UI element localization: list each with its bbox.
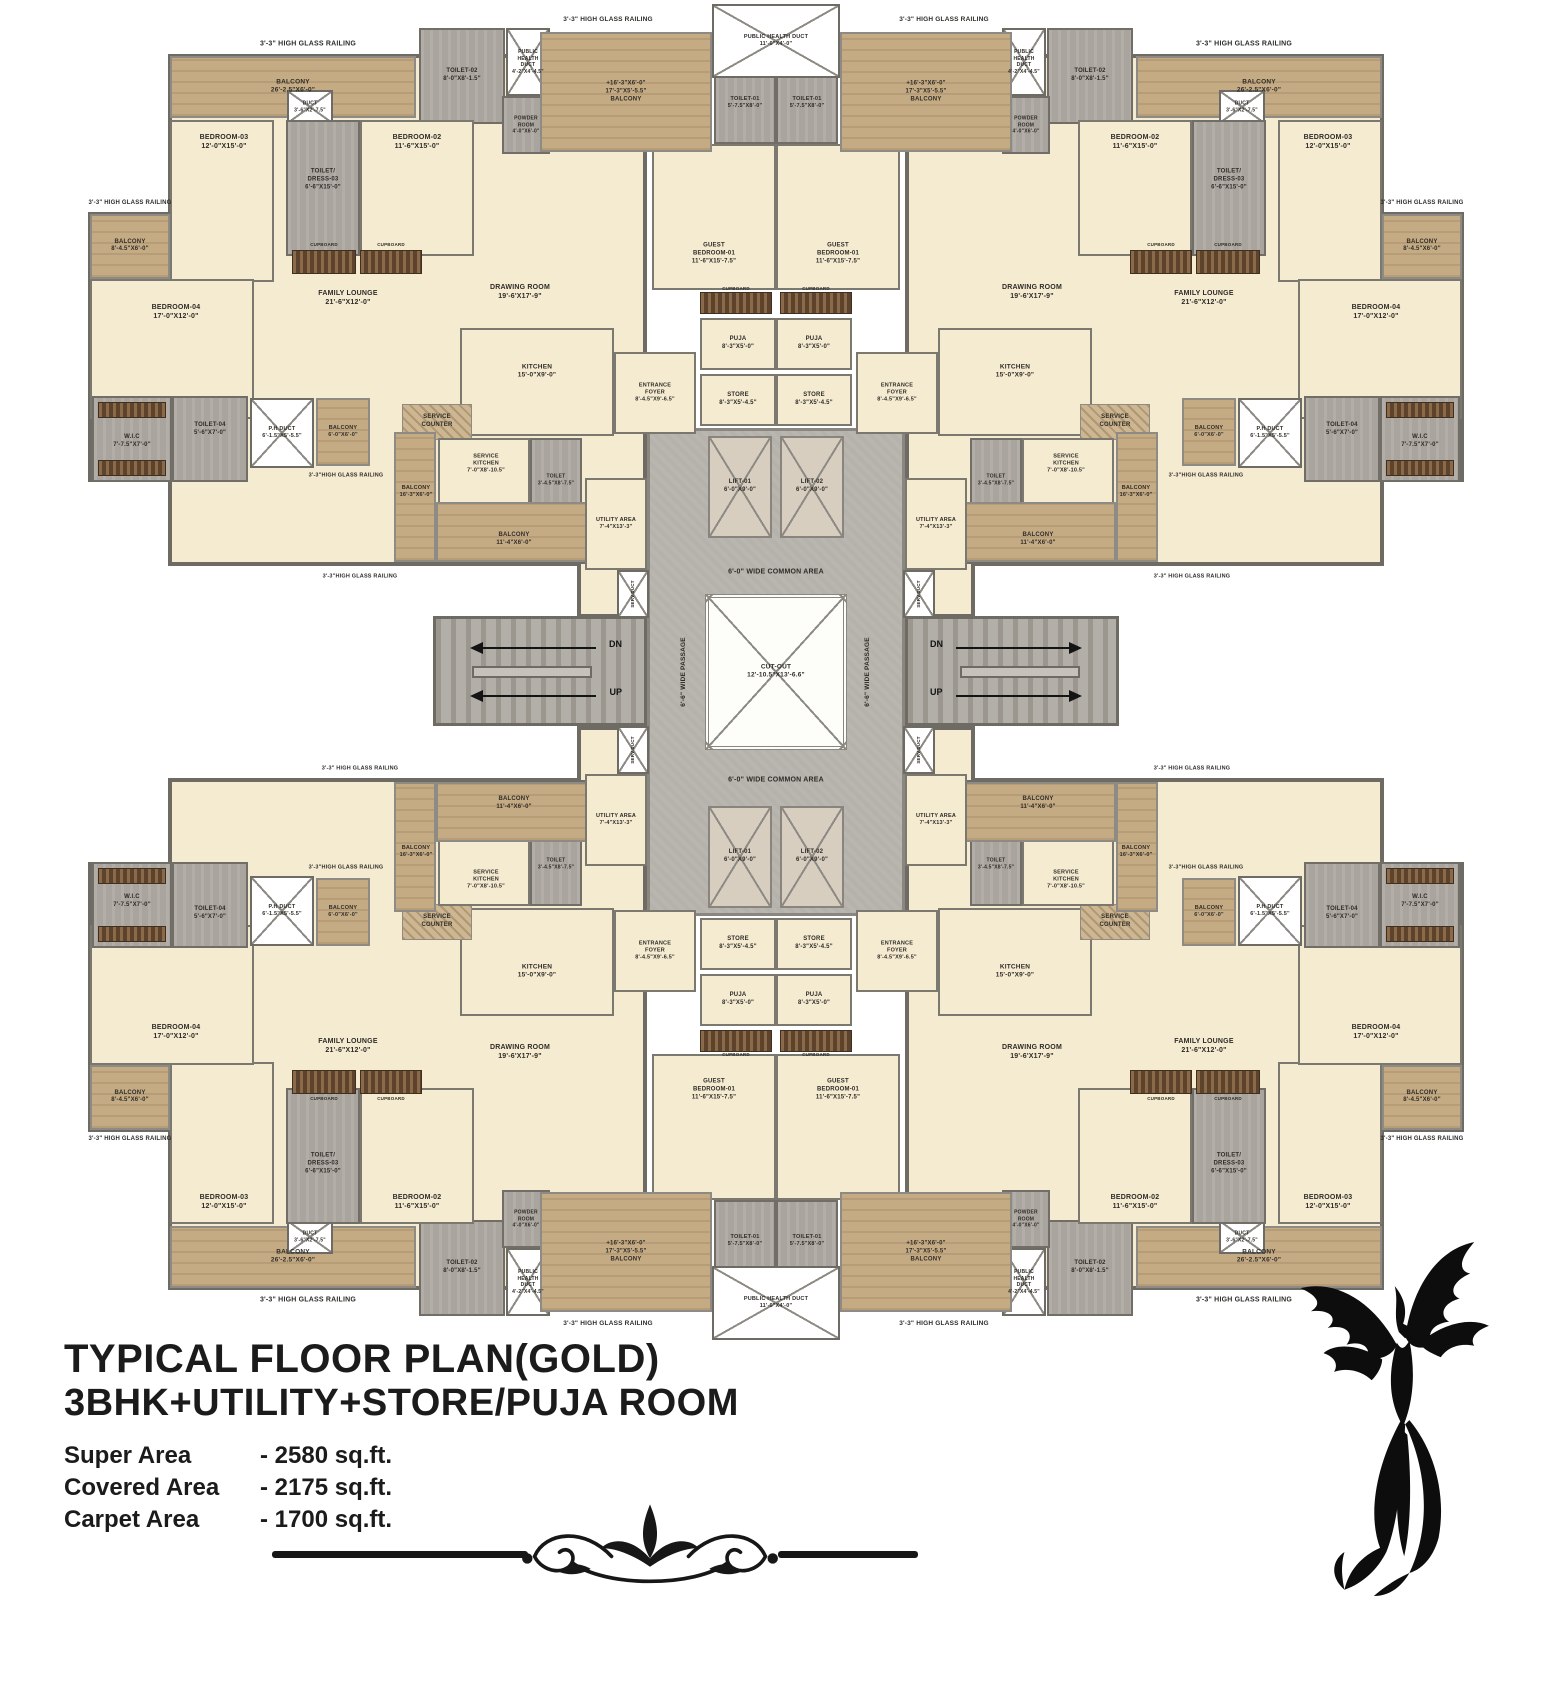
kitchen-tl-label: KITCHEN 15'-0"X9'-0" bbox=[518, 364, 556, 381]
railing-center-tl-label: 3'-3" HIGH GLASS RAILING bbox=[563, 16, 653, 24]
passage-right-label: 6'-6" WIDE PASSAGE bbox=[864, 637, 872, 707]
bedroom-02-tr-label: BEDROOM-02 11'-6"X15'-0" bbox=[1111, 133, 1160, 151]
wic-cupboard-bottom-tr bbox=[1386, 460, 1454, 476]
stair-rail-left bbox=[472, 666, 592, 678]
wic-cupboard-bottom-bl bbox=[98, 868, 166, 884]
railing-mid-tl-label: 3'-3"HIGH GLASS RAILING bbox=[309, 472, 384, 479]
toilet-04-bl bbox=[172, 862, 248, 948]
balcony-6x6-br-label: BALCONY 6'-0"X6'-0" bbox=[1194, 905, 1224, 919]
cupboard-strip-a-br bbox=[1196, 1070, 1260, 1094]
bedroom-03-bl-label: BEDROOM-03 12'-0"X15'-0" bbox=[200, 1193, 249, 1211]
cupboard-b-label-br-label: CUPBOARD bbox=[1147, 1096, 1175, 1102]
service-counter-label-bl-label: SERVICE COUNTER bbox=[421, 914, 452, 930]
service-kitchen-br-label: SERVICE KITCHEN 7'-0"X8'-10.5" bbox=[1047, 869, 1085, 890]
balcony-main-tl-label: BALCONY 26'-2.5"X6'-0" bbox=[271, 79, 315, 96]
railing-left-tl-label: 3'-3" HIGH GLASS RAILING bbox=[88, 200, 171, 208]
family-lounge-tl-label: FAMILY LOUNGE 21'-6"X12'-0" bbox=[318, 289, 377, 307]
powder-room-tl-label: POWDER ROOM 4'-0"X6'-0" bbox=[512, 115, 539, 135]
puja-tr-label: PUJA 8'-3"X5'-0" bbox=[798, 336, 830, 352]
toilet-01-bl-label: TOILET-01 5'-7.5"X8'-0" bbox=[728, 1234, 763, 1248]
balcony-11-br-label: BALCONY 11'-4"X6'-0" bbox=[1020, 796, 1055, 812]
railing-left-bl-label: 3'-3" HIGH GLASS RAILING bbox=[88, 1136, 171, 1144]
cupboard-b-label-tr-label: CUPBOARD bbox=[1147, 242, 1175, 248]
balcony-11-bl bbox=[436, 782, 592, 842]
toilet-02-br-label: TOILET-02 8'-0"X8'-1.5" bbox=[1071, 1260, 1109, 1276]
guest-cupboard-br bbox=[780, 1030, 852, 1052]
toilet-04-tr bbox=[1304, 396, 1380, 482]
drawing-room-bl-label: DRAWING ROOM 19'-6'X17'-9" bbox=[490, 1043, 550, 1061]
balcony-11-tr-label: BALCONY 11'-4"X6'-0" bbox=[1020, 532, 1055, 548]
lift-02-top-label: LIFT-02 6'-0"X9'-0" bbox=[796, 479, 828, 495]
balcony-small-left-bl-label: BALCONY 8'-4.5"X6'-0" bbox=[111, 1090, 149, 1106]
drawing-room-tl-label: DRAWING ROOM 19'-6'X17'-9" bbox=[490, 283, 550, 301]
toilet-02-tl-label: TOILET-02 8'-0"X8'-1.5" bbox=[443, 68, 481, 84]
serv-duct-br-label: SERV.DUCT bbox=[916, 736, 922, 763]
cupboard-strip-a-bl bbox=[292, 1070, 356, 1094]
utility-area-bl-label: UTILITY AREA 7'-4"X13'-3" bbox=[596, 813, 636, 827]
stat-label: Carpet Area bbox=[64, 1504, 260, 1536]
guest-cupboard-tr bbox=[780, 292, 852, 314]
common-area-top-label: 6'-0" WIDE COMMON AREA bbox=[728, 567, 824, 576]
balcony-16-tr-label: BALCONY 16'-3"X6'-0" bbox=[1120, 485, 1153, 499]
arrow-dn-left-label: DN bbox=[609, 639, 622, 649]
duct-small-tl-label: DUCT 3'-6"X2'-7.5" bbox=[294, 101, 326, 114]
puja-br-label: PUJA 8'-3"X5'-0" bbox=[798, 992, 830, 1008]
serv-duct-tr-label: SERV.DUCT bbox=[916, 580, 922, 607]
guest-cupboard-label-bl-label: CUPBOARD bbox=[722, 1052, 750, 1058]
kitchen-br bbox=[938, 908, 1092, 1016]
balcony-center-tr-label: +16'-3"X6'-0" 17'-3"X5'-5.5" BALCONY bbox=[905, 80, 946, 103]
public-health-duct-bottom-label: PUBLIC HEALTH DUCT 11'-6"X4'-0" bbox=[744, 1296, 808, 1310]
guest-cupboard-label-br-label: CUPBOARD bbox=[802, 1052, 830, 1058]
kitchen-bl-label: KITCHEN 15'-0"X9'-0" bbox=[518, 964, 556, 981]
stair-rail-right bbox=[960, 666, 1080, 678]
cupboard-strip-a-tl bbox=[292, 250, 356, 274]
balcony-small-left-tl-label: BALCONY 8'-4.5"X6'-0" bbox=[111, 239, 149, 255]
public-health-duct-top-label: PUBLIC HEALTH DUCT 11'-6"X4'-0" bbox=[744, 34, 808, 48]
plan-title: TYPICAL FLOOR PLAN(GOLD) bbox=[64, 1336, 739, 1382]
balcony-11-bl-label: BALCONY 11'-4"X6'-0" bbox=[496, 796, 531, 812]
lift-01-bottom-label: LIFT-01 6'-0"X9'-0" bbox=[724, 849, 756, 865]
kitchen-bl bbox=[460, 908, 614, 1016]
entrance-foyer-bl-label: ENTRANCE FOYER 8'-4.5"X9'-6.5" bbox=[635, 940, 675, 961]
wic-cupboard-top-bl bbox=[98, 926, 166, 942]
store-tr-label: STORE 8'-3"X5'-4.5" bbox=[795, 392, 833, 408]
toilet-04-tl bbox=[172, 396, 248, 482]
service-toilet-br-label: TOILET 3'-4.5"X8'-7.5" bbox=[978, 858, 1014, 871]
cupboard-b-label-bl-label: CUPBOARD bbox=[377, 1096, 405, 1102]
divider-ornament-icon bbox=[520, 1498, 780, 1594]
railing-mid-tr-label: 3'-3"HIGH GLASS RAILING bbox=[1169, 472, 1244, 479]
cupboard-a-label-tl-label: CUPBOARD bbox=[310, 242, 338, 248]
family-lounge-br-label: FAMILY LOUNGE 21'-6"X12'-0" bbox=[1174, 1037, 1233, 1055]
bedroom-03-tr-label: BEDROOM-03 12'-0"X15'-0" bbox=[1304, 133, 1353, 151]
stat-value: - 2175 sq.ft. bbox=[260, 1472, 392, 1504]
cupboard-strip-a-tr bbox=[1196, 250, 1260, 274]
entrance-foyer-tr-label: ENTRANCE FOYER 8'-4.5"X9'-6.5" bbox=[877, 382, 917, 403]
guest-cupboard-tl bbox=[700, 292, 772, 314]
toilet-dress-03-br-label: TOILET/ DRESS-03 6'-6"X15'-0" bbox=[1211, 1152, 1247, 1175]
family-lounge-bl-label: FAMILY LOUNGE 21'-6"X12'-0" bbox=[318, 1037, 377, 1055]
arrow-up-left: UP bbox=[470, 690, 596, 702]
balcony-center-tl-label: +16'-3"X6'-0" 17'-3"X5'-5.5" BALCONY bbox=[605, 80, 646, 103]
bedroom-02-br-label: BEDROOM-02 11'-6"X15'-0" bbox=[1111, 1193, 1160, 1211]
floor-plan: DNUPDNUP3'-3" HIGH GLASS RAILING3'-3" HI… bbox=[0, 0, 1552, 1344]
service-kitchen-tl bbox=[438, 438, 530, 512]
toilet-dress-03-tr-label: TOILET/ DRESS-03 6'-6"X15'-0" bbox=[1211, 168, 1247, 191]
service-toilet-tr-label: TOILET 3'-4.5"X8'-7.5" bbox=[978, 474, 1014, 487]
bedroom-02-tl-label: BEDROOM-02 11'-6"X15'-0" bbox=[393, 133, 442, 151]
service-counter-label-tr-label: SERVICE COUNTER bbox=[1099, 414, 1130, 430]
toilet-02-bl-label: TOILET-02 8'-0"X8'-1.5" bbox=[443, 1260, 481, 1276]
utility-area-tr-label: UTILITY AREA 7'-4"X13'-3" bbox=[916, 517, 956, 531]
bedroom-04-br-label: BEDROOM-04 17'-0"X12'-0" bbox=[1352, 1023, 1401, 1041]
toilet-dress-03-tl-label: TOILET/ DRESS-03 6'-6"X15'-0" bbox=[305, 168, 341, 191]
guest-cupboard-label-tl-label: CUPBOARD bbox=[722, 286, 750, 292]
duct-small-br-label: DUCT 3'-6"X2'-7.5" bbox=[1226, 1231, 1258, 1244]
lift-01-top-label: LIFT-01 6'-0"X9'-0" bbox=[724, 479, 756, 495]
railing-center-tr-label: 3'-3" HIGH GLASS RAILING bbox=[899, 16, 989, 24]
ph-duct-small-br-label: P.H DUCT 6'-1.5"X5'-5.5" bbox=[1250, 904, 1290, 918]
wic-br-label: W.I.C 7'-7.5"X7'-0" bbox=[1401, 894, 1439, 910]
entrance-foyer-tl-label: ENTRANCE FOYER 8'-4.5"X9'-6.5" bbox=[635, 382, 675, 403]
ph-duct-small-bl-label: P.H DUCT 6'-1.5"X5'-5.5" bbox=[262, 904, 302, 918]
toilet-01-tl-label: TOILET-01 5'-7.5"X8'-0" bbox=[728, 96, 763, 110]
drawing-room-br-label: DRAWING ROOM 19'-6'X17'-9" bbox=[1002, 1043, 1062, 1061]
wic-cupboard-top-br bbox=[1386, 926, 1454, 942]
arrow-dn-right: DN bbox=[956, 642, 1082, 654]
toilet-01-br-label: TOILET-01 5'-7.5"X8'-0" bbox=[790, 1234, 825, 1248]
bedroom-03-tl-label: BEDROOM-03 12'-0"X15'-0" bbox=[200, 133, 249, 151]
toilet-01-tr-label: TOILET-01 5'-7.5"X8'-0" bbox=[790, 96, 825, 110]
public-health-duct-corner-tl-label: PUBLIC HEALTH DUCT 4'-2"X4'-4.5" bbox=[512, 49, 544, 75]
guest-cupboard-label-tr-label: CUPBOARD bbox=[802, 286, 830, 292]
toilet-04-br bbox=[1304, 862, 1380, 948]
puja-tl-label: PUJA 8'-3"X5'-0" bbox=[722, 336, 754, 352]
wic-tl-label: W.I.C 7'-7.5"X7'-0" bbox=[113, 434, 151, 450]
balcony-11-br bbox=[960, 782, 1116, 842]
drawing-room-tr-label: DRAWING ROOM 19'-6'X17'-9" bbox=[1002, 283, 1062, 301]
toilet-04-br-label: TOILET-04 5'-6"X7'-0" bbox=[1326, 906, 1358, 922]
balcony-16-br-label: BALCONY 16'-3"X6'-0" bbox=[1120, 845, 1153, 859]
ph-duct-small-tr-label: P.H DUCT 6'-1.5"X5'-5.5" bbox=[1250, 426, 1290, 440]
railing-top-br-label: 3'-3" HIGH GLASS RAILING bbox=[1196, 1295, 1292, 1304]
balcony-6x6-tl-label: BALCONY 6'-0"X6'-0" bbox=[328, 425, 358, 439]
cupboard-a-label-br-label: CUPBOARD bbox=[1214, 1096, 1242, 1102]
store-bl-label: STORE 8'-3"X5'-4.5" bbox=[719, 936, 757, 952]
cupboard-strip-b-br bbox=[1130, 1070, 1192, 1094]
guest-bedroom-01-br bbox=[776, 1054, 900, 1200]
cupboard-a-label-bl-label: CUPBOARD bbox=[310, 1096, 338, 1102]
guest-bedroom-01-tl bbox=[652, 144, 776, 290]
cupboard-a-label-tr-label: CUPBOARD bbox=[1214, 242, 1242, 248]
guest-bedroom-01-bl bbox=[652, 1054, 776, 1200]
toilet-04-tr-label: TOILET-04 5'-6"X7'-0" bbox=[1326, 422, 1358, 438]
railing-top-tr-label: 3'-3" HIGH GLASS RAILING bbox=[1196, 39, 1292, 48]
guest-bedroom-01-tr-label: GUEST BEDROOM-01 11'-6"X15'-7.5" bbox=[816, 242, 860, 265]
service-kitchen-tl-label: SERVICE KITCHEN 7'-0"X8'-10.5" bbox=[467, 453, 505, 474]
common-area-bottom-label: 6'-0" WIDE COMMON AREA bbox=[728, 775, 824, 784]
balcony-16-tl-label: BALCONY 16'-3"X6'-0" bbox=[400, 485, 433, 499]
cupboard-b-label-tl-label: CUPBOARD bbox=[377, 242, 405, 248]
guest-bedroom-01-bl-label: GUEST BEDROOM-01 11'-6"X15'-7.5" bbox=[692, 1078, 736, 1101]
bedroom-04-tr-label: BEDROOM-04 17'-0"X12'-0" bbox=[1352, 303, 1401, 321]
public-health-duct-corner-br-label: PUBLIC HEALTH DUCT 4'-2"X4'-4.5" bbox=[1008, 1269, 1040, 1295]
powder-room-br-label: POWDER ROOM 4'-0"X6'-0" bbox=[1012, 1209, 1039, 1229]
utility-area-br-label: UTILITY AREA 7'-4"X13'-3" bbox=[916, 813, 956, 827]
divider-line-right bbox=[778, 1551, 918, 1558]
bedroom-02-bl-label: BEDROOM-02 11'-6"X15'-0" bbox=[393, 1193, 442, 1211]
passage-left-label: 6'-6" WIDE PASSAGE bbox=[680, 637, 688, 707]
bedroom-03-br-label: BEDROOM-03 12'-0"X15'-0" bbox=[1304, 1193, 1353, 1211]
kitchen-br-label: KITCHEN 15'-0"X9'-0" bbox=[996, 964, 1034, 981]
puja-bl-label: PUJA 8'-3"X5'-0" bbox=[722, 992, 754, 1008]
wic-cupboard-bottom-br bbox=[1386, 868, 1454, 884]
wic-cupboard-bottom-tl bbox=[98, 460, 166, 476]
service-toilet-bl-label: TOILET 3'-4.5"X8'-7.5" bbox=[538, 858, 574, 871]
toilet-04-bl-label: TOILET-04 5'-6"X7'-0" bbox=[194, 906, 226, 922]
powder-room-bl-label: POWDER ROOM 4'-0"X6'-0" bbox=[512, 1209, 539, 1229]
service-kitchen-tr bbox=[1022, 438, 1114, 512]
railing-top-bl-label: 3'-3" HIGH GLASS RAILING bbox=[260, 1295, 356, 1304]
toilet-02-tr-label: TOILET-02 8'-0"X8'-1.5" bbox=[1071, 68, 1109, 84]
serv-duct-bl-label: SERV.DUCT bbox=[630, 736, 636, 763]
balcony-center-bl-label: +16'-3"X6'-0" 17'-3"X5'-5.5" BALCONY bbox=[605, 1240, 646, 1263]
railing-stair-lb-label: 3'-3" HIGH GLASS RAILING bbox=[322, 765, 399, 772]
service-counter-label-tl-label: SERVICE COUNTER bbox=[421, 414, 452, 430]
stat-value: - 1700 sq.ft. bbox=[260, 1504, 392, 1536]
balcony-main-br-label: BALCONY 26'-2.5"X6'-0" bbox=[1237, 1249, 1281, 1266]
public-health-duct-corner-bl-label: PUBLIC HEALTH DUCT 4'-2"X4'-4.5" bbox=[512, 1269, 544, 1295]
wic-bl-label: W.I.C 7'-7.5"X7'-0" bbox=[113, 894, 151, 910]
family-lounge-tr-label: FAMILY LOUNGE 21'-6"X12'-0" bbox=[1174, 289, 1233, 307]
service-kitchen-tr-label: SERVICE KITCHEN 7'-0"X8'-10.5" bbox=[1047, 453, 1085, 474]
railing-center-br-label: 3'-3" HIGH GLASS RAILING bbox=[899, 1320, 989, 1328]
kitchen-tr-label: KITCHEN 15'-0"X9'-0" bbox=[996, 364, 1034, 381]
plan-subtitle: 3BHK+UTILITY+STORE/PUJA ROOM bbox=[64, 1382, 739, 1426]
ph-duct-small-tl-label: P.H DUCT 6'-1.5"X5'-5.5" bbox=[262, 426, 302, 440]
cupboard-strip-b-tr bbox=[1130, 250, 1192, 274]
balcony-6x6-bl-label: BALCONY 6'-0"X6'-0" bbox=[328, 905, 358, 919]
powder-room-tr-label: POWDER ROOM 4'-0"X6'-0" bbox=[1012, 115, 1039, 135]
balcony-11-tl-label: BALCONY 11'-4"X6'-0" bbox=[496, 532, 531, 548]
railing-mid-bl-label: 3'-3"HIGH GLASS RAILING bbox=[309, 864, 384, 871]
guest-cupboard-bl bbox=[700, 1030, 772, 1052]
guest-bedroom-01-br-label: GUEST BEDROOM-01 11'-6"X15'-7.5" bbox=[816, 1078, 860, 1101]
duct-small-bl-label: DUCT 3'-6"X2'-7.5" bbox=[294, 1231, 326, 1244]
kitchen-tl bbox=[460, 328, 614, 436]
balcony-6x6-tr-label: BALCONY 6'-0"X6'-0" bbox=[1194, 425, 1224, 439]
kitchen-tr bbox=[938, 328, 1092, 436]
service-counter-label-br-label: SERVICE COUNTER bbox=[1099, 914, 1130, 930]
guest-bedroom-01-tl-label: GUEST BEDROOM-01 11'-6"X15'-7.5" bbox=[692, 242, 736, 265]
serv-duct-tl-label: SERV.DUCT bbox=[630, 580, 636, 607]
railing-mid-br-label: 3'-3"HIGH GLASS RAILING bbox=[1169, 864, 1244, 871]
railing-top-tl-label: 3'-3" HIGH GLASS RAILING bbox=[260, 39, 356, 48]
stat-label: Covered Area bbox=[64, 1472, 260, 1504]
balcony-main-bl-label: BALCONY 26'-2.5"X6'-0" bbox=[271, 1249, 315, 1266]
balcony-16-bl-label: BALCONY 16'-3"X6'-0" bbox=[400, 845, 433, 859]
service-toilet-tl-label: TOILET 3'-4.5"X8'-7.5" bbox=[538, 474, 574, 487]
balcony-small-left-tr-label: BALCONY 8'-4.5"X6'-0" bbox=[1403, 239, 1441, 255]
railing-left-tr-label: 3'-3" HIGH GLASS RAILING bbox=[1380, 200, 1463, 208]
cut-out-label: CUT-OUT 12'-10.5"X13'-6.6" bbox=[747, 664, 805, 681]
balcony-main-tr-label: BALCONY 26'-2.5"X6'-0" bbox=[1237, 79, 1281, 96]
stat-label: Super Area bbox=[64, 1440, 260, 1472]
railing-left-br-label: 3'-3" HIGH GLASS RAILING bbox=[1380, 1136, 1463, 1144]
railing-center-bl-label: 3'-3" HIGH GLASS RAILING bbox=[563, 1320, 653, 1328]
arrow-up-left-label: UP bbox=[609, 687, 622, 697]
wic-cupboard-top-tr bbox=[1386, 402, 1454, 418]
balcony-center-br-label: +16'-3"X6'-0" 17'-3"X5'-5.5" BALCONY bbox=[905, 1240, 946, 1263]
store-br-label: STORE 8'-3"X5'-4.5" bbox=[795, 936, 833, 952]
arrow-dn-left: DN bbox=[470, 642, 596, 654]
utility-area-tl-label: UTILITY AREA 7'-4"X13'-3" bbox=[596, 517, 636, 531]
entrance-foyer-br-label: ENTRANCE FOYER 8'-4.5"X9'-6.5" bbox=[877, 940, 917, 961]
arrow-dn-right-label: DN bbox=[930, 639, 943, 649]
toilet-04-tl-label: TOILET-04 5'-6"X7'-0" bbox=[194, 422, 226, 438]
public-health-duct-corner-tr-label: PUBLIC HEALTH DUCT 4'-2"X4'-4.5" bbox=[1008, 49, 1040, 75]
balcony-small-left-br-label: BALCONY 8'-4.5"X6'-0" bbox=[1403, 1090, 1441, 1106]
store-tl-label: STORE 8'-3"X5'-4.5" bbox=[719, 392, 757, 408]
service-kitchen-bl-label: SERVICE KITCHEN 7'-0"X8'-10.5" bbox=[467, 869, 505, 890]
bedroom-04-bl-label: BEDROOM-04 17'-0"X12'-0" bbox=[152, 1023, 201, 1041]
stat-super-area: Super Area - 2580 sq.ft. bbox=[64, 1440, 739, 1472]
bedroom-04-tl-label: BEDROOM-04 17'-0"X12'-0" bbox=[152, 303, 201, 321]
lift-02-bottom-label: LIFT-02 6'-0"X9'-0" bbox=[796, 849, 828, 865]
stat-value: - 2580 sq.ft. bbox=[260, 1440, 392, 1472]
duct-small-tr-label: DUCT 3'-6"X2'-7.5" bbox=[1226, 101, 1258, 114]
arrow-up-right: UP bbox=[956, 690, 1082, 702]
cupboard-strip-b-bl bbox=[360, 1070, 422, 1094]
phoenix-logo-icon bbox=[1296, 1240, 1506, 1596]
page: DNUPDNUP3'-3" HIGH GLASS RAILING3'-3" HI… bbox=[0, 0, 1552, 1700]
wic-tr-label: W.I.C 7'-7.5"X7'-0" bbox=[1401, 434, 1439, 450]
railing-stair-lt-label: 3'-3"HIGH GLASS RAILING bbox=[323, 573, 398, 580]
toilet-dress-03-bl-label: TOILET/ DRESS-03 6'-6"X15'-0" bbox=[305, 1152, 341, 1175]
arrow-up-right-label: UP bbox=[930, 687, 943, 697]
cupboard-strip-b-tl bbox=[360, 250, 422, 274]
wic-cupboard-top-tl bbox=[98, 402, 166, 418]
guest-bedroom-01-tr bbox=[776, 144, 900, 290]
railing-stair-rb-label: 3'-3" HIGH GLASS RAILING bbox=[1154, 765, 1231, 772]
divider-line-left bbox=[272, 1551, 528, 1558]
railing-stair-rt-label: 3'-3" HIGH GLASS RAILING bbox=[1154, 573, 1231, 580]
